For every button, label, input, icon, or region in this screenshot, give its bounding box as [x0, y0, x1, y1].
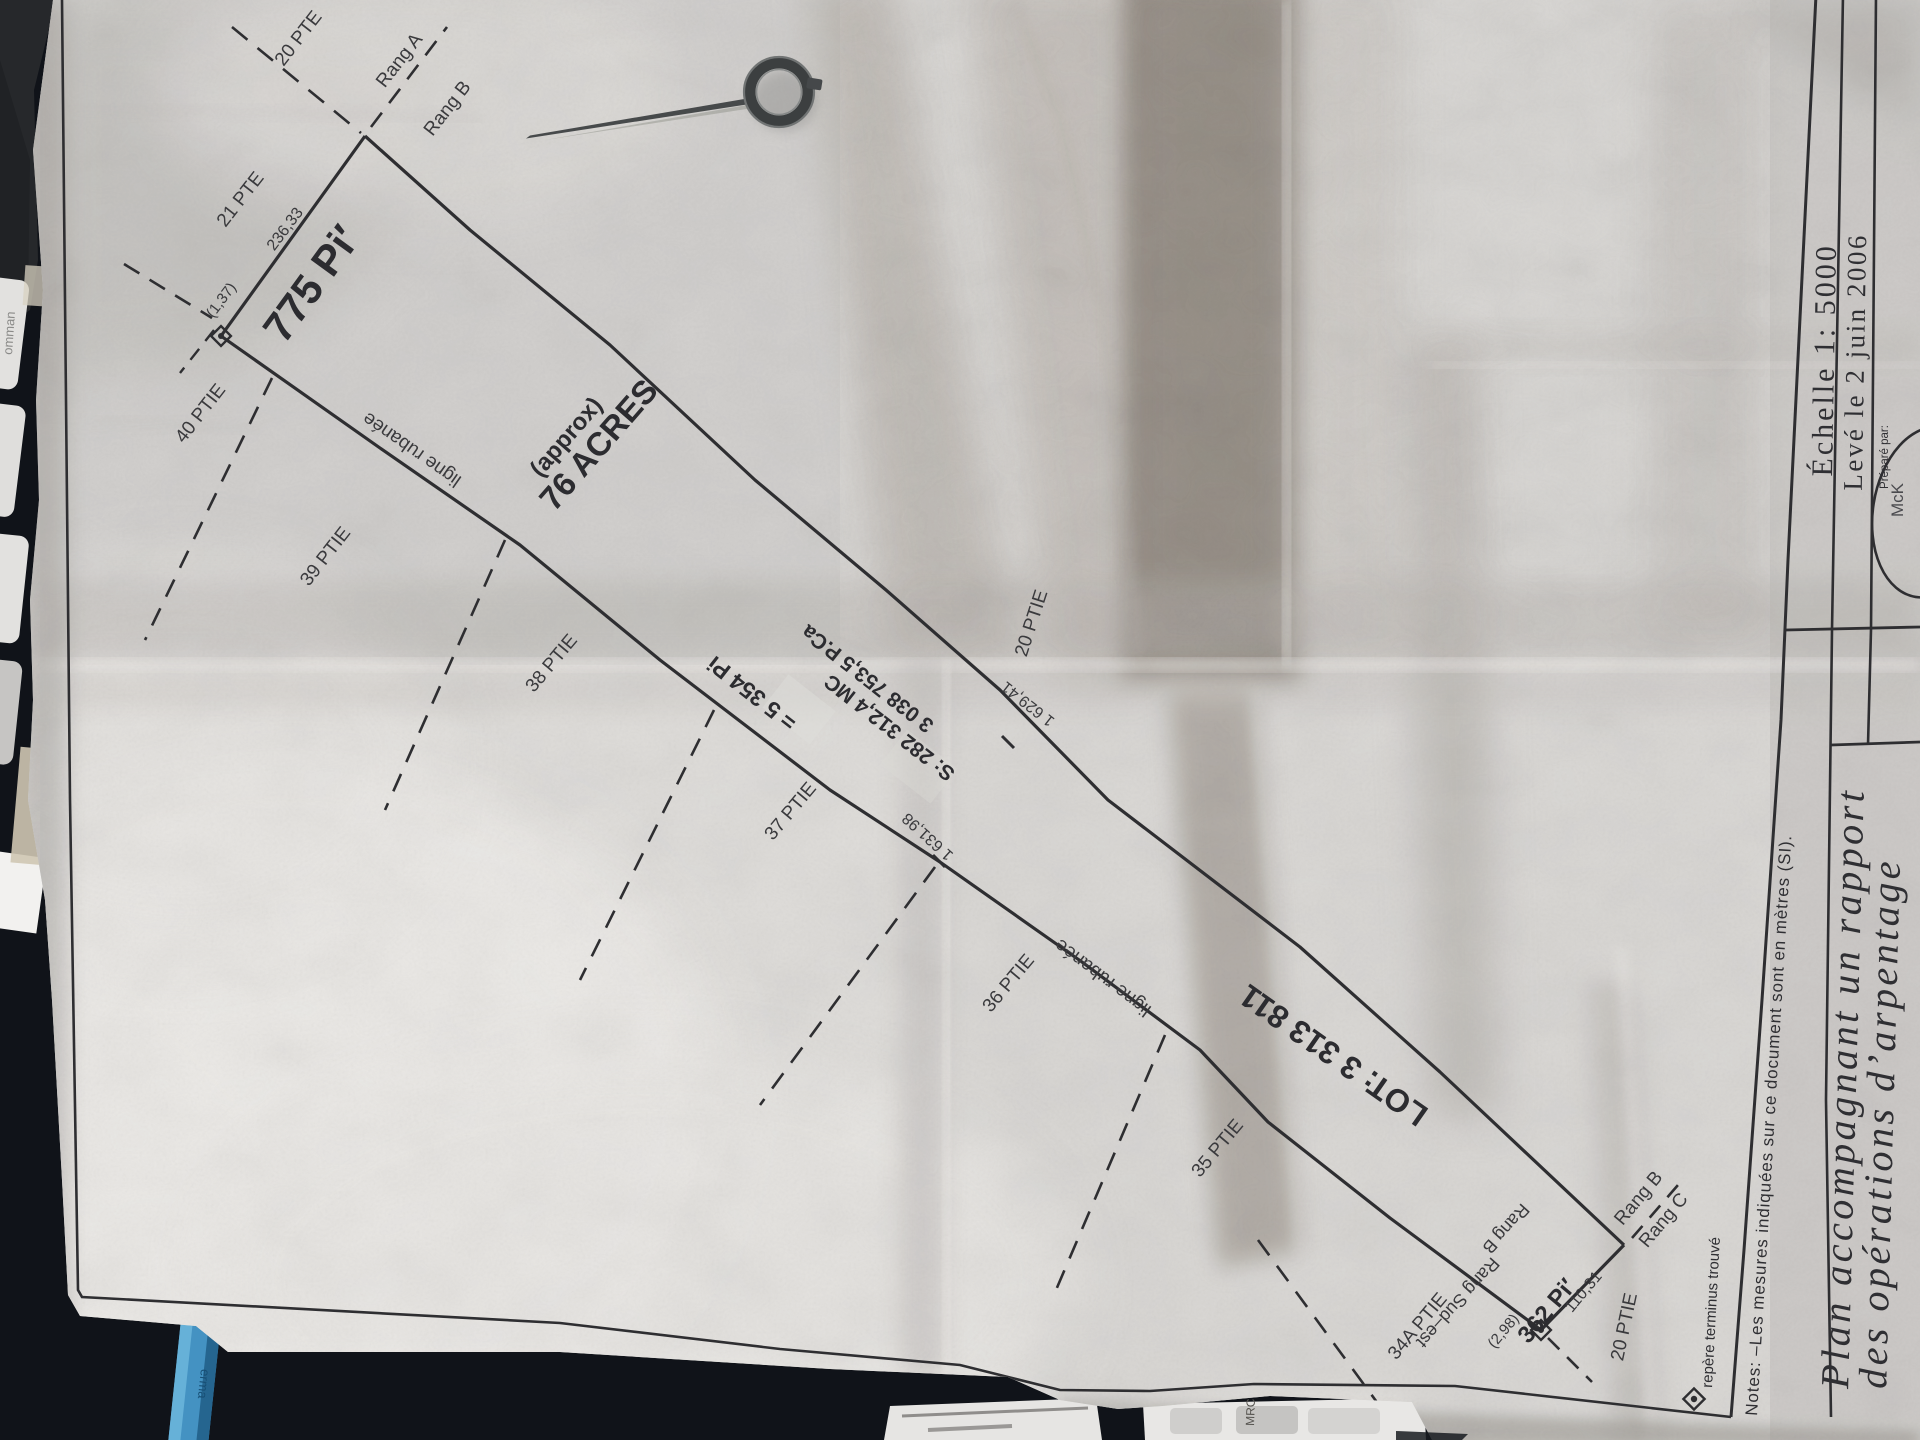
svg-text:Échelle 1: 5000: Échelle 1: 5000: [1806, 243, 1843, 477]
svg-text:McK: McK: [1888, 482, 1907, 517]
svg-text:omman: omman: [0, 311, 18, 355]
svg-text:erma: erma: [195, 1368, 213, 1400]
svg-text:MRC: MRC: [1243, 1398, 1258, 1426]
svg-text:Levé le 2 juin 2006: Levé le 2 juin 2006: [1838, 233, 1872, 491]
svg-text:Préparé par:: Préparé par:: [1879, 425, 1891, 489]
